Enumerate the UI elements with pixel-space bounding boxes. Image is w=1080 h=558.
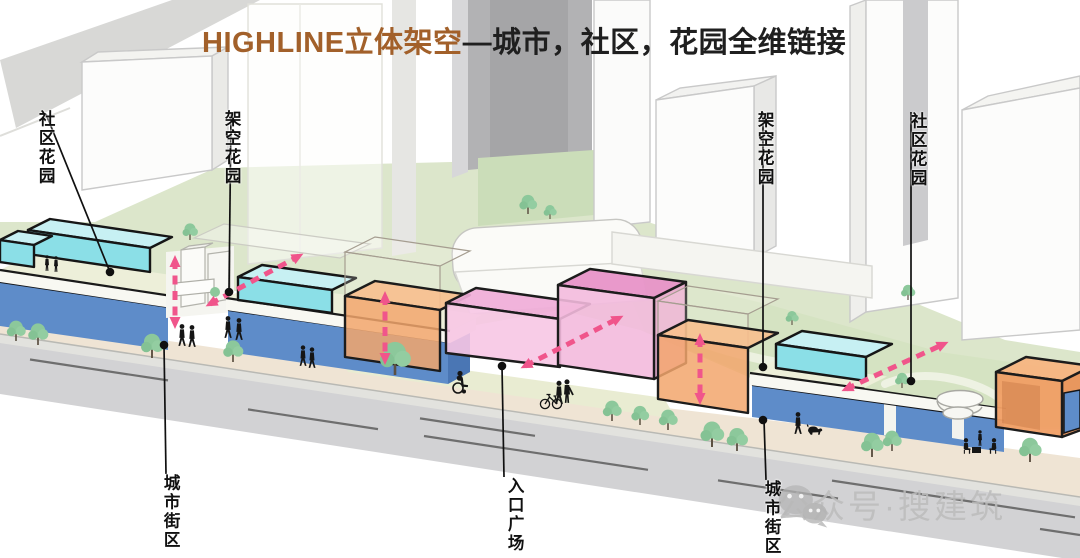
title-highlight: HIGHLINE立体架空	[202, 27, 463, 59]
callout-entrance-plaza: 入口广场	[505, 477, 523, 553]
watermark: 公众号·搜建筑	[776, 480, 1006, 528]
callout-community-garden-left: 社区花园	[36, 110, 54, 186]
callout-community-garden-right: 社区花园	[908, 112, 926, 188]
slide: HIGHLINE立体架空—城市，社区，花园全维链接 社区花园 架空花园 架空花园…	[0, 0, 1080, 558]
callout-elevated-garden-right: 架空花园	[755, 111, 773, 187]
callout-city-block-left: 城市街区	[161, 474, 179, 550]
callout-elevated-garden-left: 架空花园	[222, 110, 240, 186]
center-lawn-patch	[478, 150, 594, 226]
tower-right-b	[962, 76, 1080, 340]
retail-base-blue	[1064, 390, 1080, 433]
wechat-icon	[776, 480, 830, 532]
activity-volume-3	[996, 357, 1080, 437]
page-title: HIGHLINE立体架空—城市，社区，花园全维链接	[202, 19, 846, 61]
tower-left	[82, 47, 228, 190]
title-rest: —城市，社区，花园全维链接	[463, 27, 847, 59]
